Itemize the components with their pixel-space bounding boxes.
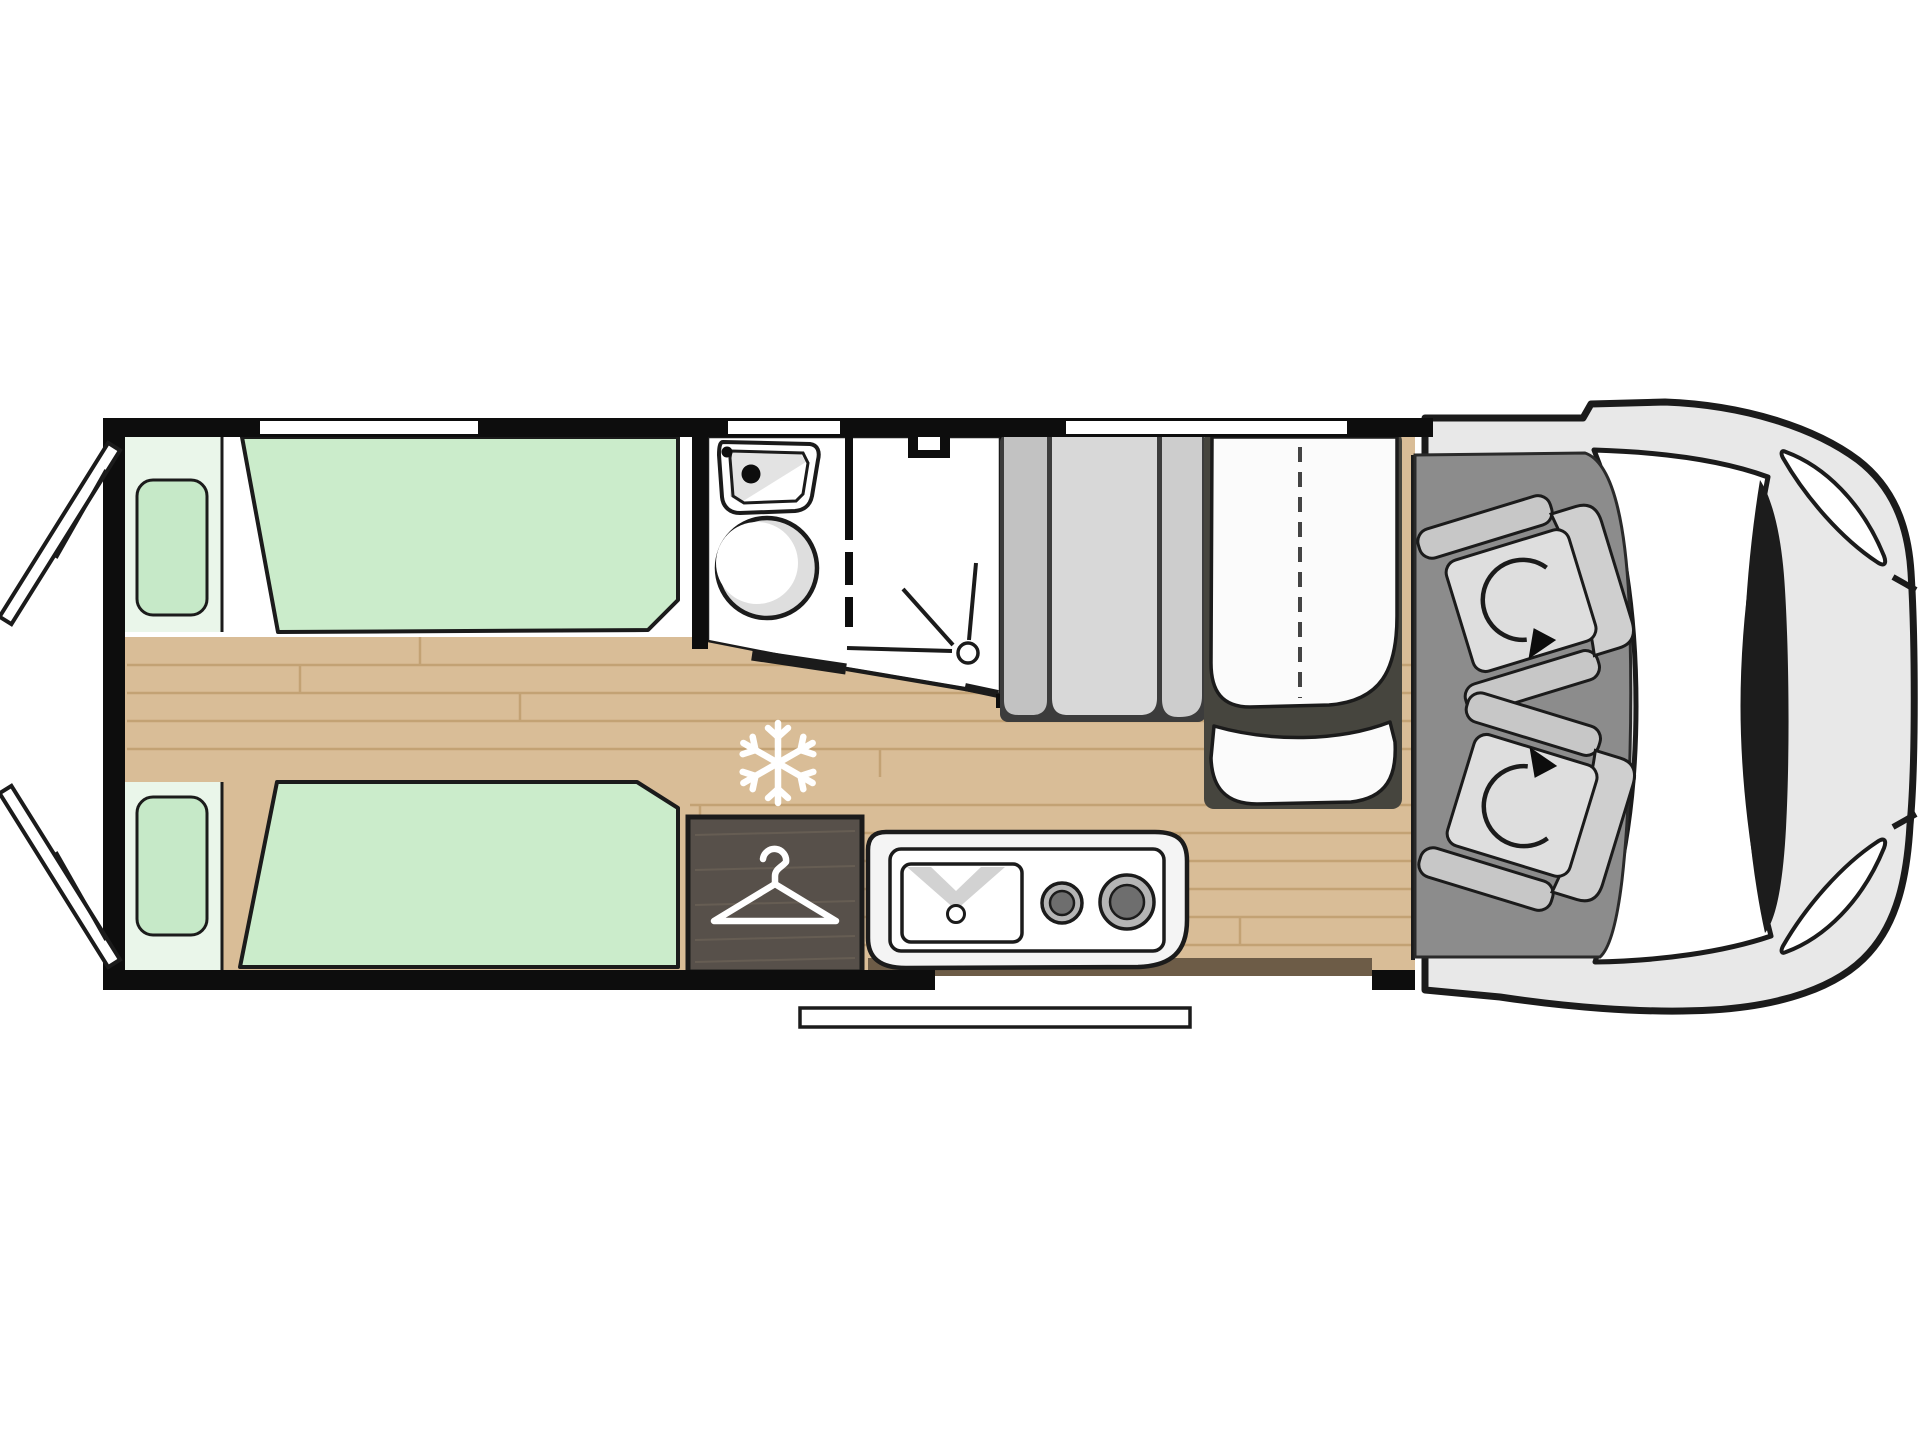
window-dinette (1066, 421, 1347, 434)
twin-bed-top (242, 437, 678, 632)
pillow-top (137, 480, 207, 615)
pillow-bottom (137, 797, 207, 935)
washbasin (719, 442, 819, 513)
wall-bottom (103, 970, 935, 990)
shower-door-dash-2 (845, 597, 853, 627)
tap-dot-large (742, 465, 761, 484)
window-bathroom (728, 421, 840, 434)
dinette-table (1211, 437, 1397, 707)
shower-column-inner (918, 437, 940, 450)
twin-bed-bottom (240, 782, 678, 967)
toilet (716, 518, 817, 618)
toilet-bowl-inner (716, 522, 798, 604)
floorplan-page (0, 0, 1920, 1440)
entry-step (800, 1008, 1190, 1027)
tap-dot-small (722, 447, 733, 458)
wardrobe-cabinet (688, 817, 862, 972)
bench-cushion (1052, 437, 1157, 715)
kitchen-unit (868, 832, 1187, 968)
wardrobe (688, 817, 862, 972)
bench-side (1162, 437, 1202, 717)
kitchen-sink (902, 864, 1022, 942)
wall-bottom-front-segment (1372, 970, 1415, 990)
shower-door-dash-1 (845, 552, 853, 585)
shower-partition (845, 437, 853, 540)
campervan-floorplan (0, 0, 1920, 1440)
wall-rear (103, 418, 125, 990)
burner-small-core (1050, 891, 1074, 915)
sink-drain (948, 906, 965, 923)
burner-large-core (1110, 885, 1144, 919)
window-rear-left (260, 421, 478, 434)
bench-backrest (1004, 437, 1047, 715)
bathroom-wall-left (692, 437, 708, 649)
